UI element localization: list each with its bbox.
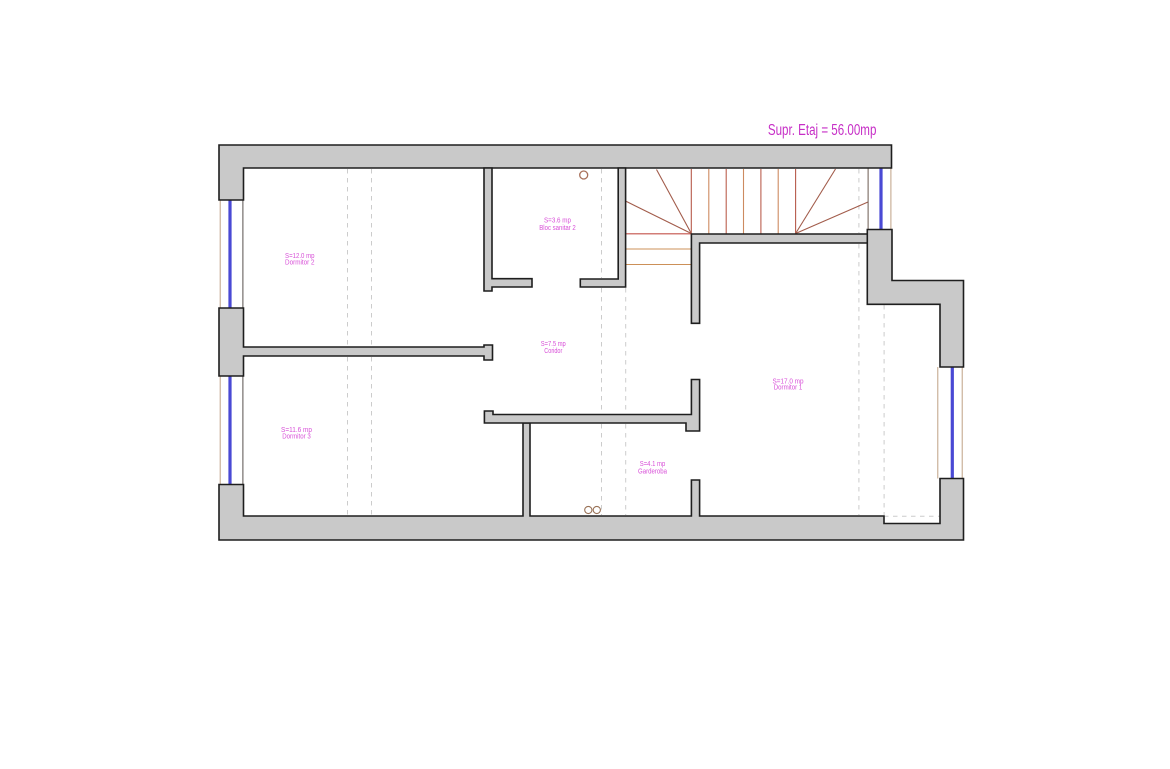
svg-text:Dormitor 1: Dormitor 1 (774, 385, 803, 392)
svg-text:Supr. Etaj = 56.00mp: Supr. Etaj = 56.00mp (768, 122, 877, 139)
svg-text:S=4.1 mp: S=4.1 mp (640, 461, 666, 468)
svg-text:S=3.6 mp: S=3.6 mp (544, 218, 571, 225)
svg-text:S=7.5 mp: S=7.5 mp (541, 341, 566, 348)
svg-text:Bloc sanitar 2: Bloc sanitar 2 (539, 225, 576, 232)
svg-text:Coridor: Coridor (544, 348, 563, 355)
svg-text:Garderoba: Garderoba (638, 469, 667, 476)
svg-text:Dormitor 2: Dormitor 2 (285, 260, 315, 267)
svg-text:Dormitor 3: Dormitor 3 (282, 434, 311, 441)
